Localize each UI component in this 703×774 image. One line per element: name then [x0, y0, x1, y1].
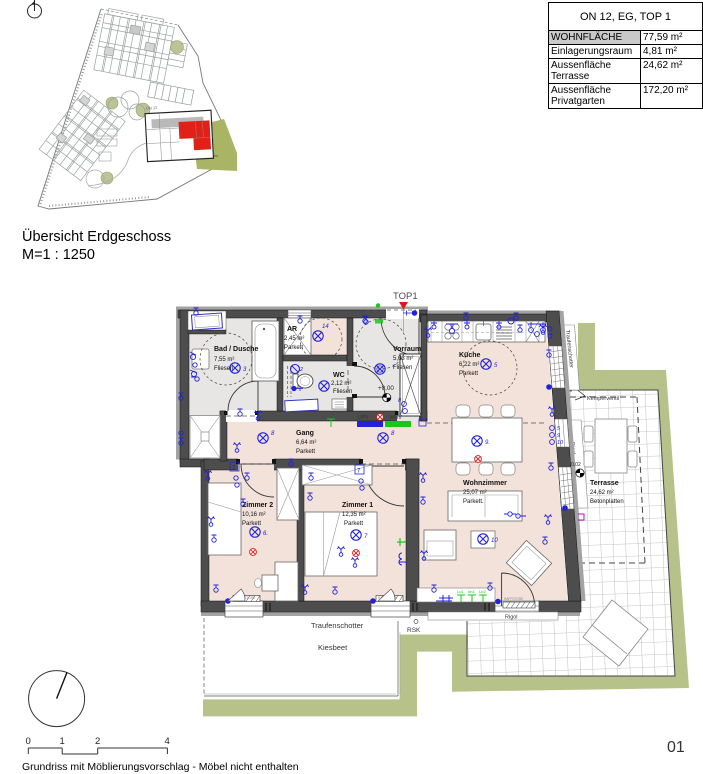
svg-text:WC: WC [333, 372, 345, 379]
svg-text:Lu1: Lu1 [457, 589, 464, 594]
svg-text:Parkett: Parkett [344, 521, 363, 527]
svg-text:9: 9 [557, 433, 560, 439]
svg-text:24,62 m²: 24,62 m² [590, 490, 614, 496]
svg-text:Parkett: Parkett [242, 521, 261, 527]
svg-text:AR: AR [287, 326, 297, 333]
svg-text:Bad / Dusche: Bad / Dusche [214, 346, 258, 353]
svg-text:6,64 m²: 6,64 m² [296, 440, 316, 446]
svg-text:25,07 m²: 25,07 m² [463, 490, 487, 496]
svg-text:Kiesbeet: Kiesbeet [318, 643, 348, 652]
svg-text:Parkett: Parkett [459, 371, 478, 377]
svg-text:Rigol: Rigol [505, 615, 518, 621]
svg-text:01: 01 [667, 739, 685, 756]
svg-text:6,22 m²: 6,22 m² [459, 362, 479, 368]
svg-text:RSK: RSK [407, 627, 421, 634]
svg-text:0,02: 0,02 [571, 462, 581, 468]
svg-text:+0,00: +0,00 [378, 385, 394, 392]
svg-text:2,45 m²: 2,45 m² [284, 336, 304, 342]
svg-text:Wohnzimmer: Wohnzimmer [463, 480, 507, 487]
svg-text:12,35 m²: 12,35 m² [342, 512, 366, 518]
svg-text:9.: 9. [485, 440, 490, 446]
svg-text:Betonplatten: Betonplatten [590, 499, 624, 505]
svg-text:4: 4 [165, 736, 170, 747]
svg-text:Traufenschotter: Traufenschotter [311, 621, 364, 630]
svg-text:2: 2 [299, 367, 303, 373]
svg-text:1: 1 [60, 736, 65, 747]
svg-text:Kemperventil: Kemperventil [587, 396, 619, 402]
svg-text:UPV: UPV [358, 415, 369, 421]
svg-text:Im1: Im1 [468, 589, 475, 594]
svg-text:RAFFSTORE: RAFFSTORE [504, 597, 523, 601]
svg-text:0: 0 [26, 736, 31, 747]
svg-text:Zimmer 1: Zimmer 1 [342, 502, 373, 509]
svg-text:MMV: MMV [390, 415, 402, 421]
svg-text:7,55 m²: 7,55 m² [214, 357, 234, 363]
svg-text:6.: 6. [263, 531, 268, 537]
svg-text:Vorraum: Vorraum [393, 346, 421, 353]
svg-text:Fliesen: Fliesen [393, 365, 412, 371]
svg-text:TOP1: TOP1 [393, 291, 418, 302]
svg-text:14: 14 [322, 324, 329, 330]
svg-text:Fliesen: Fliesen [333, 389, 352, 395]
svg-text:10,16 m²: 10,16 m² [242, 512, 266, 518]
svg-text:Küche: Küche [459, 352, 481, 359]
svg-text:Parkett: Parkett [284, 345, 303, 351]
svg-text:Übersicht Erdgeschoss: Übersicht Erdgeschoss [22, 227, 171, 245]
svg-text:Gang: Gang [296, 430, 314, 437]
svg-text:Lb2: Lb2 [479, 589, 486, 594]
svg-text:10: 10 [491, 538, 498, 544]
svg-text:2: 2 [95, 736, 100, 747]
svg-text:Grundriss mit Möblierungsvorsc: Grundriss mit Möblierungsvorschlag - Möb… [22, 761, 299, 773]
svg-text:Terrasse: Terrasse [590, 480, 619, 487]
svg-text:2,12 m²: 2,12 m² [331, 381, 351, 387]
svg-text:Zimmer 2: Zimmer 2 [242, 502, 273, 509]
svg-text:Parkett.: Parkett. [463, 499, 484, 505]
svg-text:ON 12: ON 12 [146, 105, 159, 111]
svg-text:M=1 : 1250: M=1 : 1250 [22, 247, 95, 263]
svg-text:10: 10 [557, 440, 564, 446]
svg-text:Parkett: Parkett [296, 449, 315, 455]
svg-text:5,03 m²: 5,03 m² [393, 356, 413, 362]
